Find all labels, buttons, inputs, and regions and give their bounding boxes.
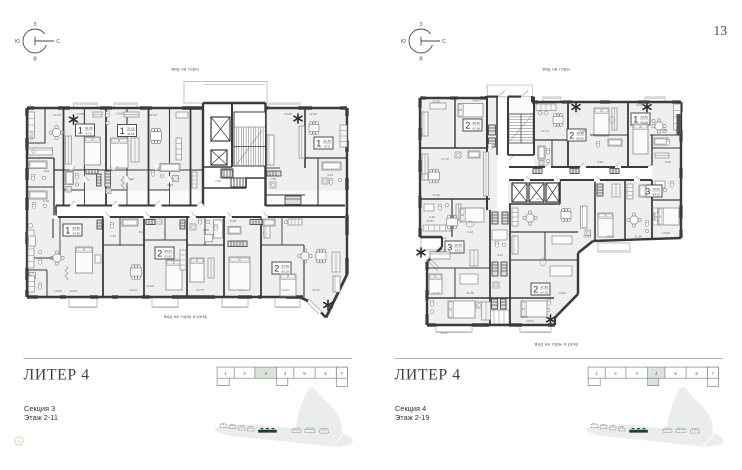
svg-text:5.93: 5.93 bbox=[230, 219, 236, 223]
svg-text:63.18: 63.18 bbox=[540, 291, 548, 295]
svg-text:13.16: 13.16 bbox=[432, 193, 440, 197]
svg-text:18.72: 18.72 bbox=[312, 288, 320, 292]
svg-text:вид на горы и реку: вид на горы и реку bbox=[164, 314, 208, 319]
svg-text:2: 2 bbox=[274, 264, 279, 274]
svg-text:8.09: 8.09 bbox=[139, 230, 145, 234]
svg-text:4.11: 4.11 bbox=[497, 253, 503, 257]
svg-text:98.32: 98.32 bbox=[454, 249, 462, 253]
svg-text:13.54: 13.54 bbox=[520, 315, 528, 319]
svg-text:33.65: 33.65 bbox=[127, 126, 135, 130]
svg-text:Секция 4: Секция 4 bbox=[395, 404, 426, 413]
svg-text:1: 1 bbox=[316, 139, 321, 149]
svg-text:12.40: 12.40 bbox=[432, 100, 440, 104]
svg-text:13.65: 13.65 bbox=[116, 112, 124, 116]
svg-text:15.00: 15.00 bbox=[606, 235, 614, 239]
svg-text:1: 1 bbox=[78, 126, 83, 136]
svg-text:2.80: 2.80 bbox=[203, 228, 209, 232]
svg-text:7.59: 7.59 bbox=[270, 177, 276, 181]
svg-text:12.30: 12.30 bbox=[432, 291, 440, 295]
svg-text:31.65: 31.65 bbox=[323, 139, 331, 143]
svg-text:5.24: 5.24 bbox=[43, 199, 49, 203]
svg-text:2!: 2! bbox=[17, 439, 20, 444]
svg-text:13: 13 bbox=[714, 23, 728, 38]
svg-text:6: 6 bbox=[695, 371, 698, 376]
svg-text:7.66: 7.66 bbox=[661, 128, 667, 132]
svg-text:5: 5 bbox=[303, 371, 306, 376]
svg-text:14.00: 14.00 bbox=[281, 288, 289, 292]
svg-text:6: 6 bbox=[324, 371, 327, 376]
svg-text:2: 2 bbox=[569, 131, 574, 141]
svg-text:1: 1 bbox=[224, 371, 227, 376]
svg-text:47.6: 47.6 bbox=[324, 145, 330, 149]
svg-text:4.24: 4.24 bbox=[167, 183, 173, 187]
svg-text:43.38: 43.38 bbox=[72, 232, 80, 236]
svg-text:44.05: 44.05 bbox=[127, 132, 135, 136]
svg-text:14.97: 14.97 bbox=[472, 99, 480, 103]
svg-text:1: 1 bbox=[120, 126, 125, 136]
svg-text:14.00: 14.00 bbox=[146, 284, 154, 288]
svg-text:11.00: 11.00 bbox=[634, 235, 642, 239]
svg-text:3: 3 bbox=[636, 371, 639, 376]
svg-text:13.65: 13.65 bbox=[284, 112, 292, 116]
svg-text:12.13: 12.13 bbox=[53, 113, 61, 117]
svg-text:27.84: 27.84 bbox=[281, 264, 289, 268]
svg-text:33.65: 33.65 bbox=[640, 115, 648, 119]
svg-text:2: 2 bbox=[533, 285, 538, 295]
svg-text:16.47: 16.47 bbox=[440, 331, 448, 335]
svg-text:7.67: 7.67 bbox=[110, 234, 116, 238]
svg-text:14.00: 14.00 bbox=[662, 231, 670, 235]
svg-text:4: 4 bbox=[284, 371, 287, 376]
svg-text:13.54: 13.54 bbox=[526, 319, 534, 323]
svg-text:17.41: 17.41 bbox=[583, 235, 591, 239]
svg-text:ЛИТЕР 4: ЛИТЕР 4 bbox=[395, 367, 461, 384]
svg-text:38.32: 38.32 bbox=[472, 121, 480, 125]
svg-text:62.56: 62.56 bbox=[472, 127, 480, 131]
svg-text:З: З bbox=[33, 22, 36, 28]
svg-text:Этаж 2-19: Этаж 2-19 bbox=[395, 413, 430, 422]
svg-text:3.23: 3.23 bbox=[597, 160, 603, 164]
svg-text:3: 3 bbox=[447, 243, 452, 253]
svg-text:Этаж 2-11: Этаж 2-11 bbox=[24, 413, 58, 422]
svg-text:вид на горы: вид на горы bbox=[542, 67, 570, 72]
svg-text:98.32: 98.32 bbox=[652, 193, 660, 197]
svg-text:Ю: Ю bbox=[15, 39, 20, 45]
svg-text:7: 7 bbox=[341, 371, 344, 376]
svg-text:4.24: 4.24 bbox=[327, 173, 333, 177]
svg-text:19.80: 19.80 bbox=[54, 289, 62, 293]
svg-text:75.26: 75.26 bbox=[454, 243, 462, 247]
svg-text:12.14: 12.14 bbox=[541, 129, 549, 133]
svg-text:вид на горы и реку: вид на горы и реку bbox=[535, 342, 579, 347]
svg-text:28.51: 28.51 bbox=[164, 249, 172, 253]
svg-text:1: 1 bbox=[65, 226, 70, 236]
svg-text:27.84: 27.84 bbox=[540, 285, 548, 289]
svg-text:5: 5 bbox=[674, 371, 677, 376]
svg-text:Секция 3: Секция 3 bbox=[24, 404, 55, 413]
svg-text:12.54: 12.54 bbox=[636, 103, 644, 107]
svg-text:63.18: 63.18 bbox=[281, 270, 289, 274]
svg-text:Ю: Ю bbox=[401, 39, 406, 45]
svg-text:7.59: 7.59 bbox=[215, 179, 221, 183]
svg-text:17.41: 17.41 bbox=[536, 197, 544, 201]
svg-text:47.6: 47.6 bbox=[86, 132, 92, 136]
svg-text:16.50: 16.50 bbox=[426, 219, 434, 223]
svg-text:2: 2 bbox=[243, 371, 246, 376]
svg-text:ЛИТЕР 4: ЛИТЕР 4 bbox=[24, 367, 90, 384]
svg-text:12.12: 12.12 bbox=[309, 112, 317, 116]
svg-text:2: 2 bbox=[157, 249, 162, 259]
svg-text:2: 2 bbox=[614, 371, 617, 376]
svg-text:33.55: 33.55 bbox=[72, 226, 80, 230]
svg-text:5.08: 5.08 bbox=[665, 160, 671, 164]
svg-text:вид на горы: вид на горы bbox=[171, 67, 199, 72]
svg-text:12.12: 12.12 bbox=[149, 113, 157, 117]
svg-text:52.82: 52.82 bbox=[164, 255, 172, 259]
svg-text:17.16: 17.16 bbox=[441, 157, 449, 161]
svg-text:С: С bbox=[56, 39, 60, 45]
svg-text:12.58: 12.58 bbox=[578, 129, 586, 133]
svg-text:3: 3 bbox=[265, 371, 268, 376]
svg-text:11.38: 11.38 bbox=[466, 291, 474, 295]
svg-text:4.24: 4.24 bbox=[43, 169, 49, 173]
svg-text:1: 1 bbox=[595, 371, 598, 376]
svg-text:13.66: 13.66 bbox=[69, 289, 77, 293]
svg-text:1: 1 bbox=[633, 115, 638, 125]
svg-text:С: С bbox=[442, 39, 446, 45]
svg-text:2: 2 bbox=[465, 121, 470, 131]
svg-text:58.66: 58.66 bbox=[576, 137, 584, 141]
svg-text:4: 4 bbox=[655, 371, 658, 376]
svg-text:31.65: 31.65 bbox=[85, 126, 93, 130]
svg-text:З: З bbox=[419, 22, 422, 28]
svg-text:13.65: 13.65 bbox=[76, 112, 84, 116]
svg-text:12.75: 12.75 bbox=[196, 288, 204, 292]
svg-text:75.26: 75.26 bbox=[652, 187, 660, 191]
svg-text:3.43: 3.43 bbox=[467, 230, 473, 234]
svg-text:14.00: 14.00 bbox=[558, 291, 566, 295]
svg-text:13.64: 13.64 bbox=[129, 288, 137, 292]
svg-text:7: 7 bbox=[712, 371, 715, 376]
